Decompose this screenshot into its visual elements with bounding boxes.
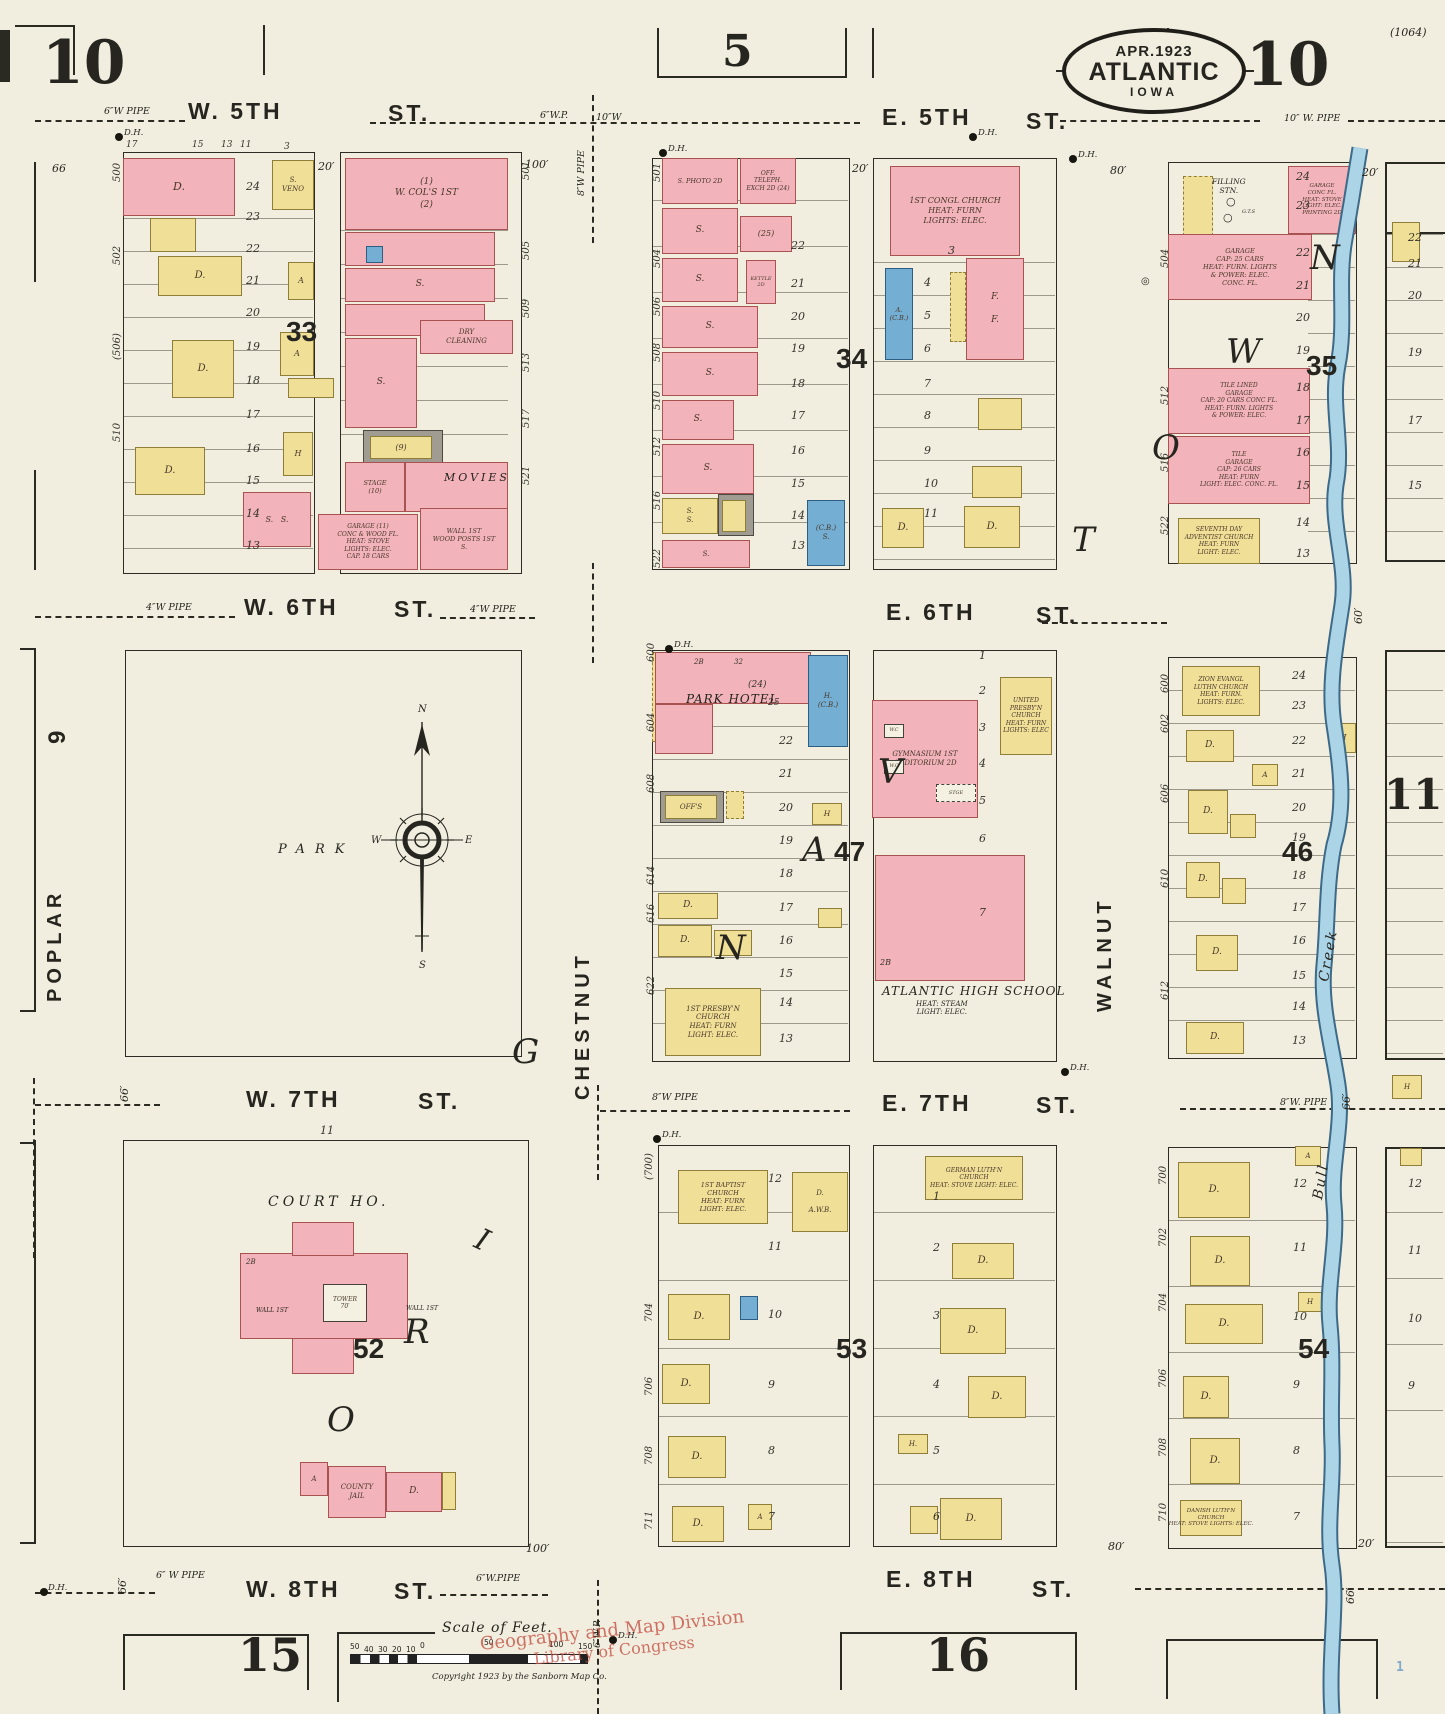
label-lot: 9 — [1408, 1379, 1415, 1392]
label-addr: 500 — [112, 163, 123, 182]
label-bl: G.T.S — [1242, 210, 1255, 216]
label-script: N — [1310, 238, 1340, 278]
label-lot: 22 — [1296, 246, 1310, 259]
label-lot: 14 — [1296, 516, 1310, 529]
label-it: D.H. — [668, 144, 687, 154]
label-lot: 16 — [246, 442, 260, 455]
label-addr: 512 — [652, 437, 663, 456]
label-stv: CHESTNUT — [572, 951, 595, 1100]
label-lot: 23 — [1296, 199, 1310, 212]
label-lot: 15 — [192, 140, 203, 150]
label-st: E. 6TH — [886, 599, 976, 626]
label-lot: 16 — [1296, 446, 1310, 459]
label-lot: 21 — [246, 274, 260, 287]
label-lot: 12 — [1408, 1177, 1422, 1190]
label-bl: ○ — [1223, 212, 1233, 225]
label-lot: 3 — [979, 721, 986, 734]
label-st: E. 7TH — [882, 1090, 972, 1117]
label-lot: 20 — [791, 310, 805, 323]
fire-hydrant-dot — [653, 1135, 661, 1143]
label-lot: 24 — [1292, 669, 1306, 682]
label-addr: 510 — [112, 423, 123, 442]
label-lot: 4 — [979, 757, 986, 770]
fire-hydrant-dot — [665, 645, 673, 653]
label-lot: 15 — [779, 967, 793, 980]
label-note: 6″W.PIPE — [476, 1573, 520, 1584]
label-it: D.H. — [1070, 1063, 1089, 1073]
label-lot: 13 — [221, 140, 232, 150]
label-it: D.H. — [978, 128, 997, 138]
label-addr: 708 — [644, 1446, 655, 1465]
label-addr: 522 — [1160, 516, 1171, 535]
label-lot: 10 — [1408, 1312, 1422, 1325]
label-lot: 20 — [246, 306, 260, 319]
label-lot: 9 — [1293, 1378, 1300, 1391]
label-lot: 5 — [979, 794, 986, 807]
label-lot: 22 — [1408, 231, 1422, 244]
label-lot: 11 — [924, 507, 938, 520]
label-lot: 21 — [791, 277, 805, 290]
label-note: 6″ W PIPE — [156, 1570, 205, 1581]
label-addr: 616 — [646, 904, 657, 923]
label-lot: 17 — [791, 409, 805, 422]
label-blknum: 34 — [836, 343, 867, 375]
label-bl: ◎ — [1141, 276, 1150, 288]
label-lot: 17 — [1408, 414, 1422, 427]
label-lot: 3 — [933, 1309, 940, 1322]
compass-north-label: N — [417, 704, 428, 715]
label-lot: 7 — [924, 377, 931, 390]
label-it: D.H. — [662, 1130, 681, 1140]
label-addr: 516 — [652, 491, 663, 510]
label-addr: 608 — [646, 774, 657, 793]
label-lot: 9 — [768, 1378, 775, 1391]
label-addr: 704 — [644, 1303, 655, 1322]
label-it: D.H. — [1078, 150, 1097, 160]
label-lot: 13 — [779, 1032, 793, 1045]
label-lot: 8 — [1293, 1444, 1300, 1457]
label-addr: 606 — [1160, 784, 1171, 803]
label-lot: 22 — [246, 242, 260, 255]
label-blue1: 1 — [1396, 1660, 1404, 1675]
label-addr: 710 — [1158, 1503, 1169, 1522]
label-script: A — [802, 830, 827, 870]
label-lot: 15 — [791, 477, 805, 490]
label-dim: 20′ — [1362, 166, 1379, 179]
label-sc: 40 — [364, 1645, 374, 1654]
label-lot: 7 — [1293, 1510, 1300, 1523]
label-dim: 20′ — [318, 160, 335, 173]
label-note: 10″ W. PIPE — [1284, 113, 1340, 124]
map-title-oval: APR.1923 ATLANTIC IOWA — [1062, 28, 1246, 114]
label-addr: 509 — [521, 299, 532, 318]
label-lot: 17 — [1296, 414, 1310, 427]
label-lotit: PARK HOTEL — [686, 692, 779, 706]
label-lotit: COURT HO. — [268, 1194, 389, 1210]
label-script: N — [716, 928, 746, 968]
label-addr: 602 — [1160, 714, 1171, 733]
label-lot: 5 — [933, 1444, 940, 1457]
label-lot: 8 — [924, 409, 931, 422]
compass-east-label: E — [464, 835, 473, 846]
label-lot: 14 — [779, 996, 793, 1009]
label-note: 10″W — [596, 112, 621, 123]
label-lot: 21 — [1296, 279, 1310, 292]
label-addr: 506 — [652, 297, 663, 316]
label-script: V — [878, 752, 903, 792]
label-lot: 24 — [246, 180, 260, 193]
label-lot: 16 — [791, 444, 805, 457]
label-addr: 612 — [1160, 981, 1171, 1000]
label-dim: 80′ — [1110, 164, 1127, 177]
label-addr: 600 — [1160, 674, 1171, 693]
label-dim: 60′ — [1352, 608, 1365, 625]
label-script: W — [1226, 332, 1261, 372]
label-lot: 4 — [933, 1378, 940, 1391]
label-blknum: 47 — [834, 836, 865, 868]
fire-hydrant-dot — [1061, 1068, 1069, 1076]
label-bl: FILLING STN. — [1212, 178, 1246, 195]
compass-south-label: S — [419, 960, 426, 971]
label-lot: 7 — [979, 906, 986, 919]
label-lot: 18 — [779, 867, 793, 880]
label-lot: 11 — [1408, 1244, 1422, 1257]
label-st: ST. — [418, 1088, 460, 1115]
label-lot: 20 — [779, 801, 793, 814]
label-addr: 700 — [1158, 1166, 1169, 1185]
compass-rose-icon: N W E S — [377, 700, 467, 980]
label-st: ST. — [394, 1578, 436, 1605]
label-addr: 706 — [644, 1377, 655, 1396]
label-lot: 21 — [1292, 767, 1306, 780]
label-lot: 7 — [768, 1510, 775, 1523]
fire-hydrant-dot — [969, 133, 977, 141]
label-bl: WALL 1ST — [406, 1306, 438, 1313]
label-lot: 14 — [246, 507, 260, 520]
label-script: R — [404, 1312, 430, 1352]
label-addr: 517 — [521, 409, 532, 428]
label-lot: 19 — [1296, 344, 1310, 357]
label-lot: 14 — [791, 509, 805, 522]
label-lot: 10 — [1293, 1310, 1307, 1323]
label-lot: 15 — [246, 474, 260, 487]
label-note: 4″W PIPE — [470, 604, 516, 615]
label-addr: 711 — [644, 1511, 655, 1530]
label-addr: 521 — [521, 466, 532, 485]
label-addr: 610 — [1160, 869, 1171, 888]
label-note: 8″W. PIPE — [1280, 1097, 1327, 1108]
label-addr: 706 — [1158, 1369, 1169, 1388]
label-note: 8″W PIPE — [576, 150, 587, 196]
label-addr: 614 — [646, 866, 657, 885]
label-lot: 16 — [779, 934, 793, 947]
label-note: 4″W PIPE — [146, 602, 192, 613]
label-st: ST. — [1036, 602, 1078, 629]
label-lot: 8 — [768, 1444, 775, 1457]
label-it: D.H. — [674, 640, 693, 650]
label-dim: 20′ — [852, 162, 869, 175]
label-bl: HEAT: STEAM LIGHT: ELEC. — [916, 1000, 968, 1016]
label-lot: 12 — [768, 1172, 782, 1185]
label-script: T — [1072, 520, 1095, 560]
label-lot: 13 — [791, 539, 805, 552]
label-dim: 66′ — [1344, 1588, 1357, 1605]
label-lot: 16 — [1292, 934, 1306, 947]
label-lot: 17 — [246, 408, 260, 421]
label-blknum: 35 — [1306, 350, 1337, 382]
label-blknum: 33 — [286, 316, 317, 348]
label-lot: 2 — [979, 684, 986, 697]
label-lot: 13 — [1296, 547, 1310, 560]
label-script: G — [512, 1032, 539, 1072]
label-dim: 66 — [52, 162, 66, 175]
label-addr: 702 — [1158, 1228, 1169, 1247]
label-lot: 18 — [246, 374, 260, 387]
label-lot: 18 — [1292, 869, 1306, 882]
fire-hydrant-dot — [659, 149, 667, 157]
label-lot: 23 — [246, 210, 260, 223]
label-lot: 19 — [791, 342, 805, 355]
label-addr: 522 — [652, 549, 663, 568]
label-lot: 13 — [246, 539, 260, 552]
label-lot: 10 — [924, 477, 938, 490]
label-addr: 501 — [652, 163, 663, 182]
label-stv: POPLAR — [44, 889, 67, 1002]
label-note: 8″W PIPE — [652, 1092, 698, 1103]
label-addr: 512 — [1160, 386, 1171, 405]
label-st: W. 8TH — [246, 1576, 341, 1603]
label-tab: 5 — [722, 26, 753, 77]
label-st: ST. — [388, 100, 430, 127]
map-city: ATLANTIC — [1088, 58, 1219, 87]
label-lot: 11 — [320, 1124, 334, 1137]
label-st: E. 5TH — [882, 104, 972, 131]
label-dim: 66′ — [1340, 1094, 1353, 1111]
label-addr: 516 — [1160, 453, 1171, 472]
label-lot: 20 — [1292, 801, 1306, 814]
label-st: ST. — [1026, 108, 1068, 135]
label-addr: 622 — [646, 976, 657, 995]
label-lot: 2B — [246, 1258, 256, 1266]
label-lotit: MOVIES — [444, 471, 510, 484]
bull-creek — [0, 0, 1445, 1714]
label-lot: 20 — [1296, 311, 1310, 324]
label-lot: 1 — [933, 1190, 940, 1203]
label-tab: 10 — [42, 28, 126, 98]
label-st: W. 7TH — [246, 1086, 341, 1113]
label-blknum: 52 — [353, 1333, 384, 1365]
label-it: D.H. — [48, 1583, 67, 1593]
label-lot: 18 — [1296, 381, 1310, 394]
label-st: ST. — [1036, 1092, 1078, 1119]
label-dim: 20′ — [1358, 1537, 1375, 1550]
label-dim: 100′ — [526, 1542, 550, 1555]
label-st: W. 5TH — [188, 98, 283, 125]
label-lot: 19 — [246, 340, 260, 353]
label-lot: 20 — [1408, 289, 1422, 302]
map-state: IOWA — [1130, 85, 1178, 99]
label-lot: 6 — [924, 342, 931, 355]
label-lot: 9 — [924, 444, 931, 457]
label-addr: 502 — [112, 246, 123, 265]
label-lot: 21 — [1408, 257, 1422, 270]
label-lot: 1 — [979, 649, 986, 662]
label-addr: 704 — [1158, 1293, 1169, 1312]
label-lot: 19 — [1408, 346, 1422, 359]
label-bl: ○ — [1226, 196, 1236, 209]
label-lot: 11 — [240, 140, 251, 150]
label-stv: 9 — [44, 726, 72, 744]
label-lot: 13 — [1292, 1034, 1306, 1047]
label-lotit: ATLANTIC HIGH SCHOOL — [882, 984, 1065, 998]
label-addr: 600 — [646, 643, 657, 662]
label-addr: 504 — [652, 249, 663, 268]
label-lot: 24 — [1296, 170, 1310, 183]
label-note: 6″W PIPE — [104, 106, 150, 117]
label-lot: 10 — [768, 1308, 782, 1321]
label-lot: 19 — [779, 834, 793, 847]
label-blknum: 54 — [1298, 1333, 1329, 1365]
label-lot: 25 — [768, 698, 779, 708]
label-lot: 12 — [1293, 1177, 1307, 1190]
label-note: 6″W.P. — [540, 110, 568, 121]
compass-west-label: W — [371, 835, 382, 846]
label-lot: 11 — [768, 1240, 782, 1253]
label-addr: (506) — [112, 333, 123, 360]
label-it: D.H. — [124, 128, 143, 138]
label-lot: 17 — [126, 140, 137, 150]
label-dim: 66′ — [116, 1578, 129, 1595]
label-lotit: PARK — [278, 842, 354, 857]
label-dim: 80′ — [1108, 1540, 1125, 1553]
label-lot: 17 — [1292, 901, 1306, 914]
label-tab: 16 — [926, 1628, 990, 1682]
label-lot: 3 — [284, 142, 290, 152]
label-lot: 3 — [948, 244, 955, 257]
fire-hydrant-dot — [1069, 155, 1077, 163]
label-lot: 15 — [1292, 969, 1306, 982]
label-lot: 6 — [979, 832, 986, 845]
label-lot: 2 — [933, 1241, 940, 1254]
label-dim: 66′ — [118, 1086, 131, 1103]
label-lot: 11 — [1293, 1241, 1307, 1254]
label-addr: 513 — [521, 353, 532, 372]
label-lot: 2B — [880, 958, 891, 967]
label-lot: 22 — [1292, 734, 1306, 747]
label-lot: 19 — [1292, 831, 1306, 844]
label-sc: 30 — [378, 1645, 388, 1654]
label-addr: 504 — [1160, 249, 1171, 268]
label-st: E. 8TH — [886, 1566, 976, 1593]
label-addr: 510 — [652, 391, 663, 410]
label-sc: 10 — [406, 1645, 416, 1654]
label-st: ST. — [1032, 1576, 1074, 1603]
label-lot: 22 — [791, 239, 805, 252]
label-lot: 2B — [694, 658, 704, 666]
label-bl: WALL 1ST — [256, 1308, 288, 1315]
label-tab: 11 — [1384, 770, 1442, 819]
label-lot: 5 — [924, 309, 931, 322]
label-lot: 17 — [779, 901, 793, 914]
label-addr: 505 — [521, 241, 532, 260]
label-addr: 604 — [646, 713, 657, 732]
label-lot: 15 — [1296, 479, 1310, 492]
sanborn-map-sheet: APR.1923 ATLANTIC IOWA N W E S Geography… — [0, 0, 1445, 1714]
label-addr: 708 — [1158, 1438, 1169, 1457]
label-lot: 14 — [1292, 1000, 1306, 1013]
fire-hydrant-dot — [115, 133, 123, 141]
label-st: ST. — [394, 596, 436, 623]
label-lot: 15 — [1408, 479, 1422, 492]
label-lot: 6 — [933, 1510, 940, 1523]
label-blknum: 53 — [836, 1333, 867, 1365]
label-lot: 32 — [734, 658, 743, 666]
label-lot: 23 — [1292, 699, 1306, 712]
label-addr: 508 — [652, 343, 663, 362]
label-lot: 21 — [779, 767, 793, 780]
label-lot: 18 — [791, 377, 805, 390]
label-addr: (700) — [644, 1153, 655, 1180]
fire-hydrant-dot — [40, 1588, 48, 1596]
label-lot: 22 — [779, 734, 793, 747]
label-stv: WALNUT — [1094, 896, 1117, 1012]
label-st: W. 6TH — [244, 594, 339, 621]
label-lot: (24) — [748, 680, 766, 690]
label-lot: 4 — [924, 276, 931, 289]
label-dim: (1064) — [1390, 26, 1427, 39]
label-sc: 20 — [392, 1645, 402, 1654]
label-tab: 15 — [238, 1628, 302, 1682]
label-script: O — [327, 1400, 355, 1440]
label-tab: 10 — [1246, 30, 1330, 100]
label-sc: 50 — [350, 1642, 360, 1651]
label-addr: 501 — [521, 161, 532, 180]
